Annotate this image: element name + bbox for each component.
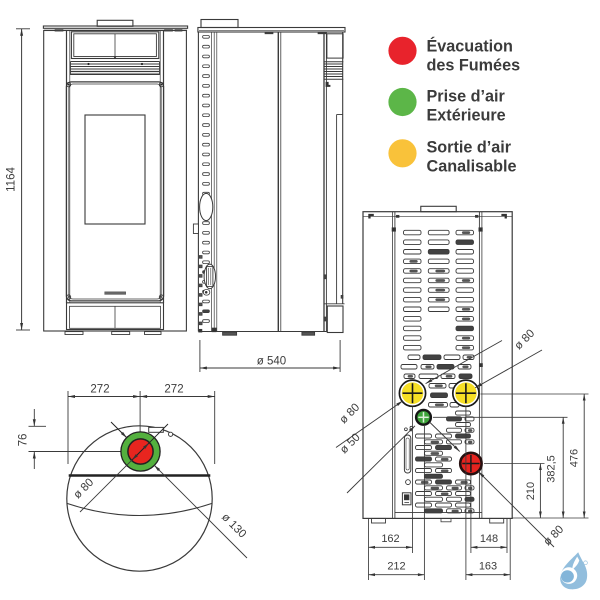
svg-text:ø 130: ø 130 <box>219 511 248 540</box>
svg-text:Prise d’air: Prise d’air <box>427 87 506 105</box>
svg-text:Évacuation: Évacuation <box>427 36 513 55</box>
svg-text:ø 50: ø 50 <box>338 431 363 456</box>
svg-text:ø 80: ø 80 <box>512 327 537 352</box>
svg-text:162: 162 <box>381 533 399 545</box>
svg-text:Extérieure: Extérieure <box>427 107 506 125</box>
svg-text:272: 272 <box>164 384 183 396</box>
svg-text:ø 80: ø 80 <box>71 476 96 501</box>
svg-text:ø 80: ø 80 <box>337 401 362 426</box>
svg-text:76: 76 <box>18 434 30 447</box>
svg-text:148: 148 <box>480 533 498 545</box>
svg-text:476: 476 <box>569 449 581 467</box>
svg-text:des Fumées: des Fumées <box>427 57 521 75</box>
svg-text:ø 540: ø 540 <box>257 356 286 368</box>
svg-text:382,5: 382,5 <box>546 455 558 483</box>
svg-text:212: 212 <box>387 560 405 572</box>
svg-text:Sortie d’air: Sortie d’air <box>427 138 512 156</box>
svg-text:ø 80: ø 80 <box>541 523 566 548</box>
svg-text:272: 272 <box>90 384 109 396</box>
svg-text:Canalisable: Canalisable <box>427 158 517 176</box>
svg-text:210: 210 <box>525 482 537 500</box>
svg-text:163: 163 <box>479 560 497 572</box>
svg-text:1164: 1164 <box>6 167 18 192</box>
